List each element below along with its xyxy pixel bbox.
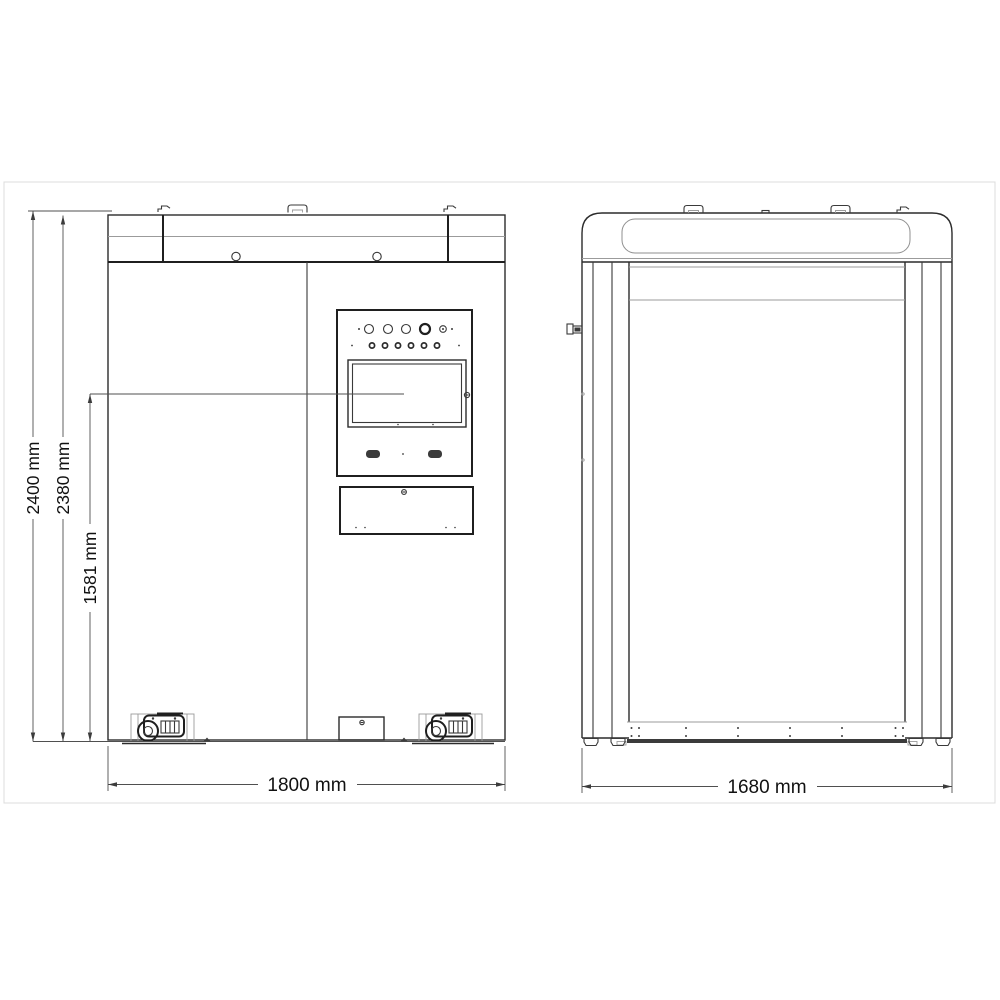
panel-button bbox=[428, 450, 442, 458]
side-cabinet-outline bbox=[582, 213, 952, 738]
dimension-front-width: 1800 mm bbox=[108, 746, 505, 796]
leveling-foot bbox=[936, 739, 950, 746]
dimension-screen-height: 1581 mm bbox=[80, 394, 404, 742]
indicator-lamp bbox=[365, 325, 374, 334]
utility-box bbox=[339, 717, 384, 740]
caster-wheel-left bbox=[131, 714, 194, 742]
touchscreen bbox=[348, 360, 466, 427]
panel-buttons bbox=[366, 450, 442, 458]
technical-drawing: 2400 mm 2380 mm 1581 mm 1800 mm bbox=[0, 0, 1000, 1000]
indicator-row-top bbox=[358, 324, 453, 334]
side-columns bbox=[582, 262, 952, 738]
lifting-hook-icon bbox=[444, 206, 456, 212]
dimension-label-screen-height: 1581 mm bbox=[80, 532, 100, 605]
side-view bbox=[567, 206, 952, 746]
lifting-bracket-icon bbox=[831, 206, 850, 214]
indicator-lamp bbox=[384, 325, 393, 334]
dimension-label-overall-height: 2400 mm bbox=[23, 442, 43, 515]
lifting-hook-icon bbox=[158, 206, 170, 212]
roof-lintel-panel bbox=[622, 219, 910, 253]
caster-wheel-right bbox=[419, 714, 482, 742]
front-base bbox=[33, 714, 505, 744]
control-panel bbox=[337, 310, 472, 476]
dimension-label-body-height: 2380 mm bbox=[53, 442, 73, 515]
leveling-foot bbox=[611, 739, 625, 746]
front-lifting-fittings bbox=[158, 205, 456, 213]
drawing-canvas: 2400 mm 2380 mm 1581 mm 1800 mm bbox=[0, 0, 1000, 1000]
leveling-foot bbox=[584, 739, 598, 746]
dimension-annotations: 2400 mm 2380 mm 1581 mm 1800 mm bbox=[23, 211, 952, 798]
door-latch bbox=[567, 324, 582, 334]
front-view bbox=[33, 205, 505, 744]
access-panel-screw-icon bbox=[402, 490, 407, 495]
dimension-label-side-width: 1680 mm bbox=[727, 777, 806, 798]
front-cabinet-outline bbox=[108, 215, 505, 740]
panel-lock-screw-icon bbox=[464, 392, 469, 397]
indicator-lamp bbox=[402, 325, 411, 334]
access-panel bbox=[340, 487, 473, 534]
dimension-side-width: 1680 mm bbox=[582, 748, 952, 798]
leveling-foot bbox=[909, 739, 923, 746]
indicator-row-bottom bbox=[351, 343, 460, 348]
side-lifting-fittings bbox=[684, 206, 909, 214]
dimension-label-front-width: 1800 mm bbox=[267, 775, 346, 796]
top-band-vents bbox=[232, 252, 381, 260]
dimension-body-height: 2380 mm bbox=[53, 216, 73, 742]
power-button bbox=[420, 324, 430, 334]
threshold-sill bbox=[617, 722, 917, 745]
page-border bbox=[4, 182, 995, 803]
lifting-bracket-icon bbox=[288, 205, 307, 213]
panel-button bbox=[366, 450, 380, 458]
door-opening bbox=[629, 267, 905, 300]
lifting-hook-icon bbox=[897, 207, 909, 213]
lifting-bracket-icon bbox=[684, 206, 703, 214]
sill-screws bbox=[631, 727, 905, 737]
